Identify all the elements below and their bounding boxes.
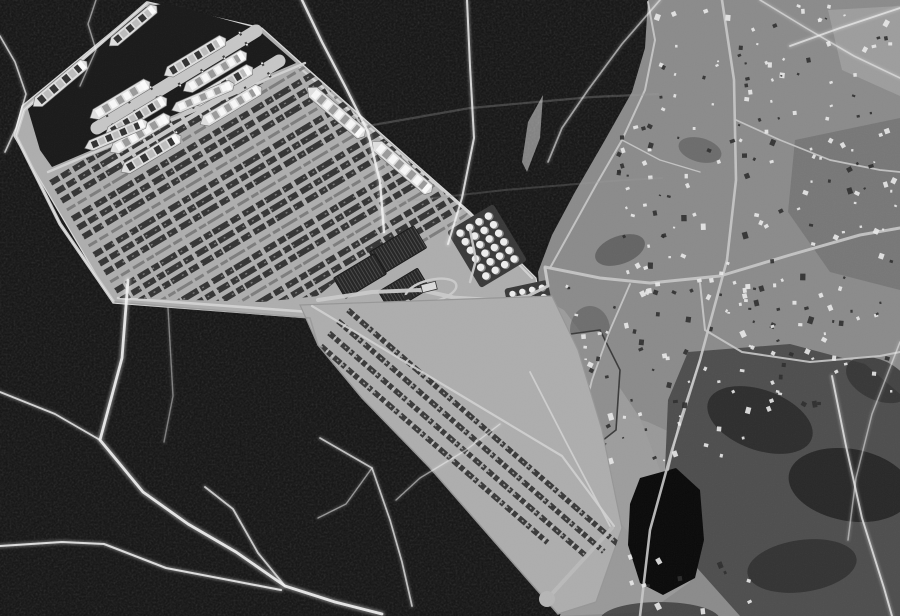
aerial-photo-port-town — [0, 0, 900, 616]
satellite-image — [0, 0, 900, 616]
film-grain-overlay — [0, 0, 900, 616]
